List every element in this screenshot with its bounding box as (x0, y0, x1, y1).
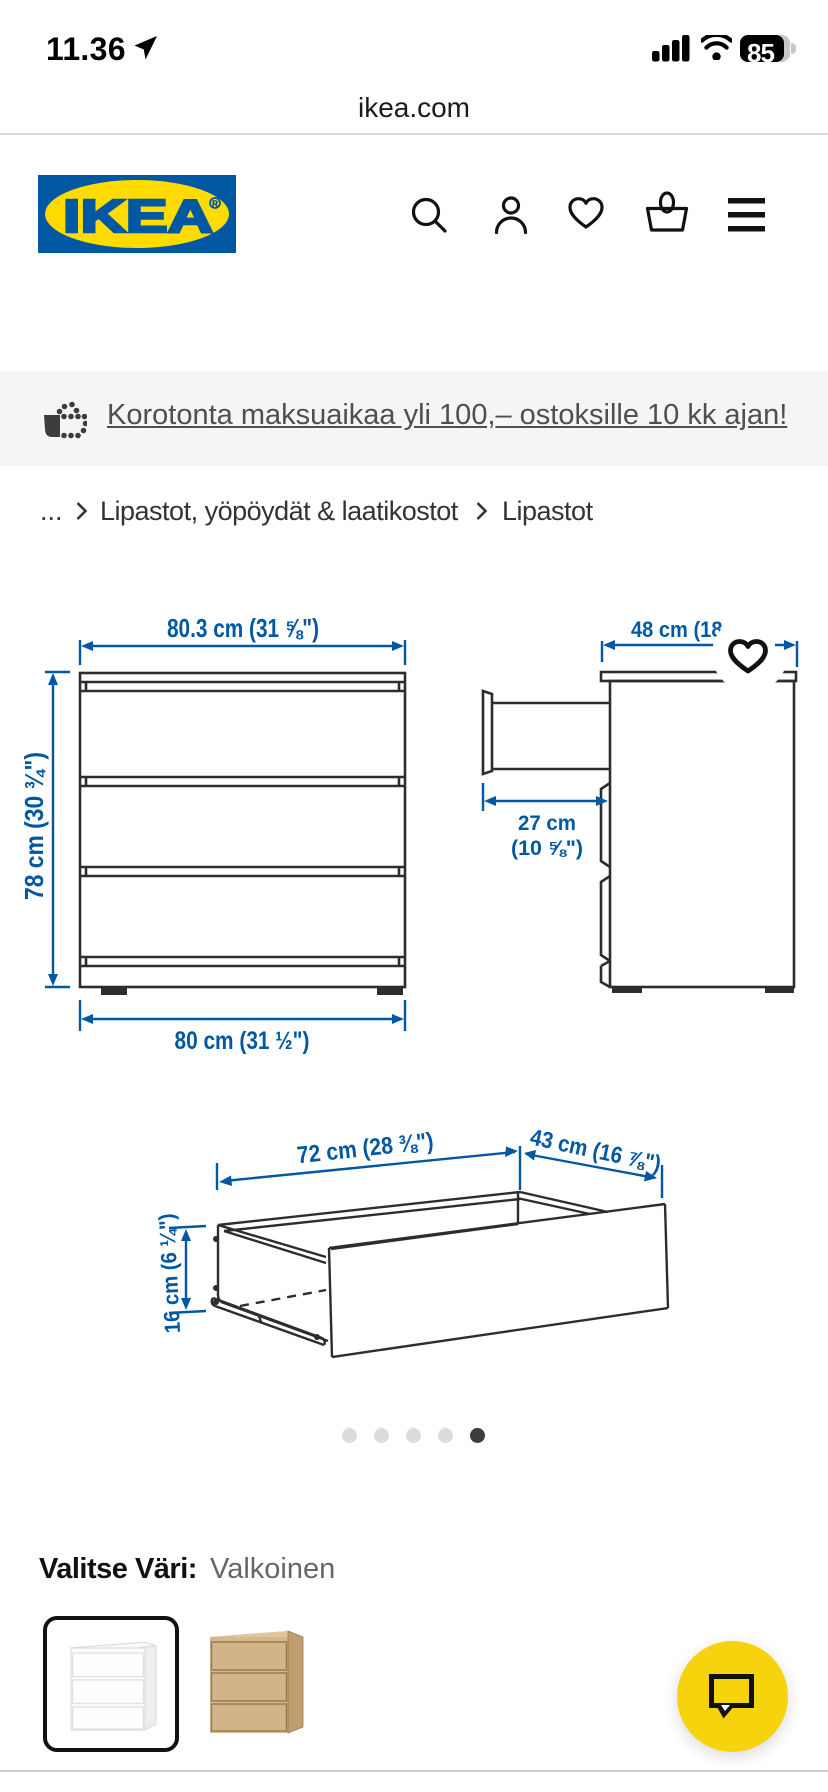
svg-text:(10 ⅝"): (10 ⅝") (511, 837, 583, 860)
svg-text:43 cm (16 ⅞"): 43 cm (16 ⅞") (528, 1124, 663, 1177)
svg-text:80 cm (31 ½"): 80 cm (31 ½") (175, 1027, 310, 1055)
svg-text:78 cm (30 ¾"): 78 cm (30 ¾") (19, 752, 49, 900)
svg-text:80.3 cm (31 ⅝"): 80.3 cm (31 ⅝") (167, 613, 319, 643)
svg-text:16 cm (6 ¼"): 16 cm (6 ¼") (154, 1213, 185, 1334)
svg-text:27 cm: 27 cm (518, 812, 576, 835)
